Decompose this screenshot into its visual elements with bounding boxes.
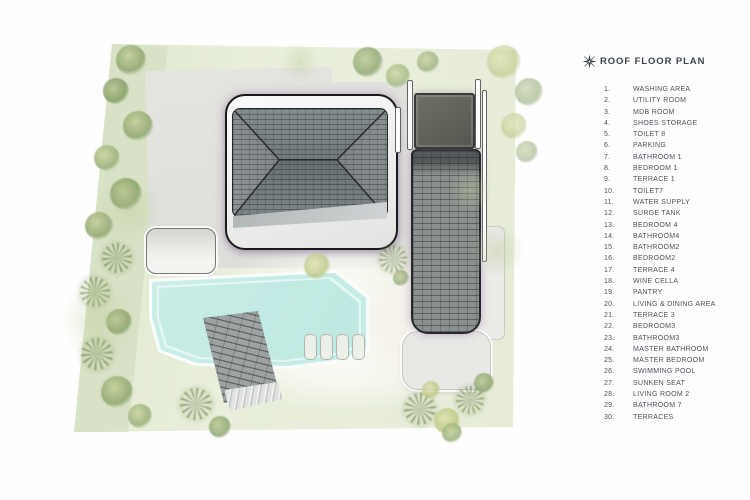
legend-row: 25.MASTER BEDROOM [604, 357, 750, 368]
legend-number: 29. [604, 402, 633, 409]
tree [101, 376, 133, 408]
legend-row: 17.TERRACE 4 [604, 267, 750, 278]
tree [386, 64, 410, 88]
tree [94, 145, 120, 171]
legend-label: SWIMMING POOL [633, 368, 696, 375]
legend-label: BATHROOM 7 [633, 402, 682, 409]
tree [116, 45, 146, 75]
page-title: ROOF FLOOR PLAN [600, 56, 705, 67]
legend-row: 22.BEDROOM3 [604, 323, 750, 334]
legend-header: ROOF FLOOR PLAN [582, 54, 705, 69]
legend-row: 10.TOILET7 [604, 188, 750, 199]
legend-row: 26.SWIMMING POOL [604, 368, 750, 379]
legend-number: 27. [604, 380, 633, 387]
legend-number: 23. [604, 335, 633, 342]
legend-number: 12. [604, 210, 633, 217]
legend-label: UTILITY ROOM [633, 97, 686, 104]
legend-number: 17. [604, 267, 633, 274]
legend-number: 4. [604, 120, 633, 127]
legend-number: 25. [604, 357, 633, 364]
legend-label: BEDROOM2 [633, 255, 675, 262]
legend-label: BEDROOM 4 [633, 222, 678, 229]
legend-label: TOILET 8 [633, 131, 666, 138]
palm-tree [102, 243, 132, 273]
legend-number: 1. [604, 86, 633, 93]
legend-number: 6. [604, 142, 633, 149]
roof-floor-plan-page: ROOF FLOOR PLAN 1.WASHING AREA2.UTILITY … [0, 0, 750, 500]
legend-number: 13. [604, 222, 633, 229]
legend-row: 11.WATER SUPPLY [604, 199, 750, 210]
legend-row: 12.SURGE TANK [604, 210, 750, 221]
legend-row: 7.BATHROOM 1 [604, 154, 750, 165]
legend-number: 15. [604, 244, 633, 251]
legend-row: 16.BEDROOM2 [604, 255, 750, 266]
legend-row: 15.BATHROOM2 [604, 244, 750, 255]
legend-number: 14. [604, 233, 633, 240]
legend-label: BATHROOM 1 [633, 154, 682, 161]
legend-number: 18. [604, 278, 633, 285]
legend-row: 24.MASTER BATHROOM [604, 346, 750, 357]
legend-number: 21. [604, 312, 633, 319]
tree [103, 78, 129, 104]
legend-row: 29.BATHROOM 7 [604, 402, 750, 413]
tree [516, 141, 538, 163]
legend-row: 6.PARKING [604, 142, 750, 153]
palm-tree [180, 388, 212, 420]
legend-label: WASHING AREA [633, 86, 690, 93]
legend-row: 18.WINE CELLA [604, 278, 750, 289]
palm-tree [379, 245, 407, 273]
tree [209, 416, 231, 438]
grass-patch [280, 42, 320, 82]
legend-number: 26. [604, 368, 633, 375]
grass-patch [93, 175, 163, 245]
legend-row: 9.TERRACE 1 [604, 176, 750, 187]
legend-number: 7. [604, 154, 633, 161]
legend-label: MDB ROOM [633, 109, 675, 116]
legend-label: BATHROOM2 [633, 244, 680, 251]
legend-label: WINE CELLA [633, 278, 678, 285]
legend-row: 4.SHOES STORAGE [604, 120, 750, 131]
legend-label: BEDROOM 1 [633, 165, 678, 172]
legend-label: SHOES STORAGE [633, 120, 697, 127]
tree [417, 51, 439, 73]
legend-label: LIVING ROOM 2 [633, 391, 689, 398]
grass-patch [448, 168, 493, 213]
legend-row: 2.UTILITY ROOM [604, 97, 750, 108]
legend-row: 13.BEDROOM 4 [604, 222, 750, 233]
legend-row: 8.BEDROOM 1 [604, 165, 750, 176]
legend-row: 19.PANTRY [604, 289, 750, 300]
compass-rose-icon [582, 54, 597, 69]
tree [442, 423, 462, 443]
tree [304, 253, 330, 279]
legend-number: 10. [604, 188, 633, 195]
legend-label: TERRACE 3 [633, 312, 675, 319]
legend-number: 16. [604, 255, 633, 262]
legend-number: 20. [604, 301, 633, 308]
legend-number: 3. [604, 109, 633, 116]
tree [501, 113, 527, 139]
legend-label: PANTRY [633, 289, 663, 296]
legend-number: 11. [604, 199, 633, 206]
legend-row: 20.LIVING & DINING AREA [604, 301, 750, 312]
legend-number: 30. [604, 414, 633, 421]
legend-label: WATER SUPPLY [633, 199, 690, 206]
legend-number: 28. [604, 391, 633, 398]
legend-label: BATHROOM3 [633, 335, 680, 342]
legend-label: TOILET7 [633, 188, 663, 195]
legend-number: 24. [604, 346, 633, 353]
legend-label: MASTER BEDROOM [633, 357, 704, 364]
grass-patch [60, 280, 140, 360]
legend-row: 3.MDB ROOM [604, 109, 750, 120]
legend-number: 5. [604, 131, 633, 138]
legend-number: 8. [604, 165, 633, 172]
legend-row: 5.TOILET 8 [604, 131, 750, 142]
legend-number: 22. [604, 323, 633, 330]
legend-label: SUNKEN SEAT [633, 380, 685, 387]
tree [515, 78, 543, 106]
legend-label: MASTER BATHROOM [633, 346, 709, 353]
tree [487, 45, 521, 79]
legend-row: 23.BATHROOM3 [604, 335, 750, 346]
grass-patch [470, 223, 525, 278]
legend-label: TERRACE 4 [633, 267, 675, 274]
tree [474, 373, 494, 393]
legend-list: 1.WASHING AREA2.UTILITY ROOM3.MDB ROOM4.… [604, 86, 750, 425]
legend-row: 21.TERRACE 3 [604, 312, 750, 323]
legend-row: 1.WASHING AREA [604, 86, 750, 97]
tree [128, 404, 152, 428]
legend-label: SURGE TANK [633, 210, 681, 217]
legend-label: BEDROOM3 [633, 323, 675, 330]
legend-number: 9. [604, 176, 633, 183]
legend-label: TERRACES [633, 414, 674, 421]
legend-label: LIVING & DINING AREA [633, 301, 716, 308]
legend-label: BATHROOM4 [633, 233, 680, 240]
tree [393, 270, 409, 286]
legend-row: 28.LIVING ROOM 2 [604, 391, 750, 402]
tree [353, 47, 383, 77]
tree [422, 381, 440, 399]
legend-number: 2. [604, 97, 633, 104]
legend-label: PARKING [633, 142, 666, 149]
legend-row: 27.SUNKEN SEAT [604, 380, 750, 391]
legend-number: 19. [604, 289, 633, 296]
legend-row: 14.BATHROOM4 [604, 233, 750, 244]
legend-label: TERRACE 1 [633, 176, 675, 183]
tree [123, 111, 153, 141]
legend-row: 30.TERRACES [604, 414, 750, 425]
